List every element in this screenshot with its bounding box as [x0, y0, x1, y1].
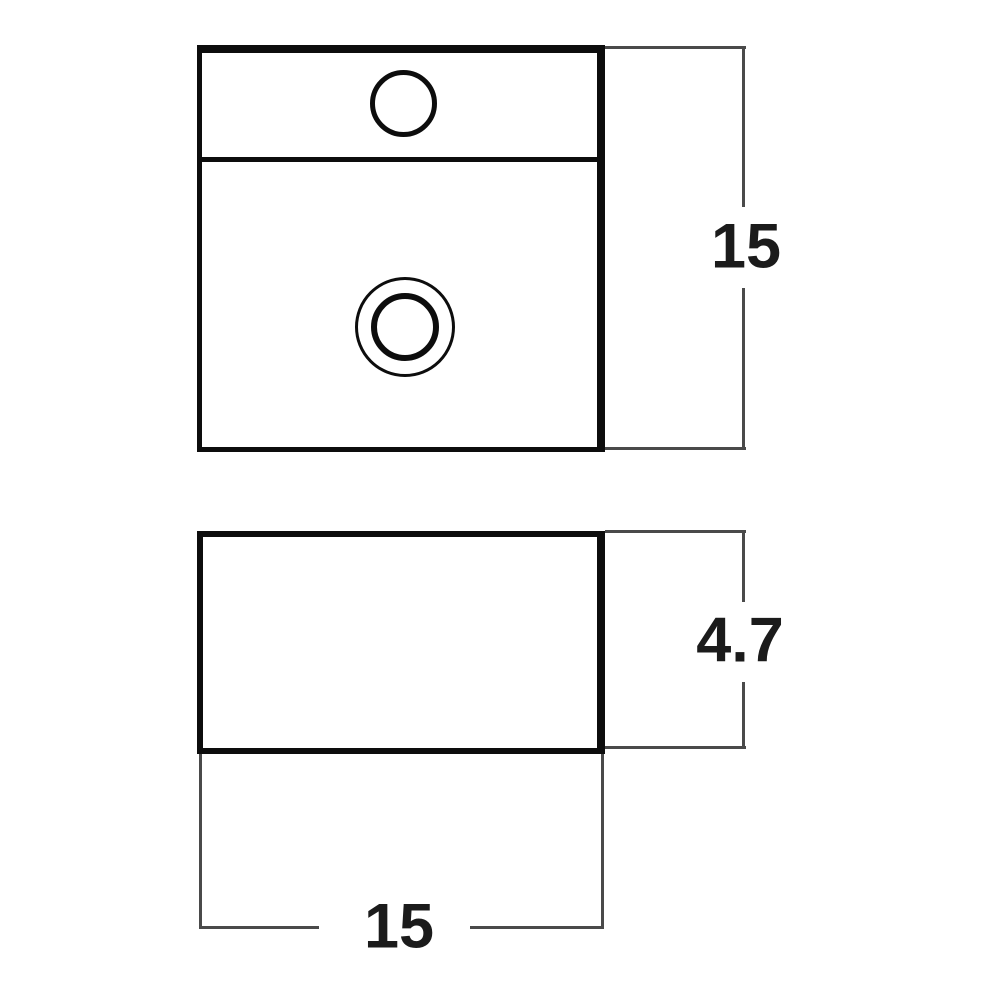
height-dim-extension-bottom: [605, 447, 746, 450]
faucet-deck-divider-line: [197, 157, 605, 162]
width-dim-extension-right: [601, 754, 604, 929]
height-dim-label: 15: [711, 216, 781, 279]
depth-dim-extension-top: [605, 530, 746, 533]
dimension-drawing-canvas: 15 4.7 15: [0, 0, 1000, 1000]
depth-dim-label: 4.7: [696, 610, 784, 673]
width-dim-label: 15: [364, 896, 434, 959]
height-dim-line-lower: [742, 288, 745, 449]
drain-inner-ring: [371, 293, 439, 361]
depth-dim-line-lower: [742, 682, 745, 749]
width-dim-line-right: [470, 926, 604, 929]
depth-dim-line-upper: [742, 530, 745, 602]
height-dim-extension-top: [605, 46, 746, 49]
faucet-hole-circle: [370, 70, 437, 137]
width-dim-line-left: [199, 926, 319, 929]
depth-dim-extension-bottom: [605, 746, 746, 749]
width-dim-extension-left: [199, 754, 202, 929]
height-dim-line-upper: [742, 46, 745, 207]
sink-front-view-outline: [197, 531, 605, 754]
